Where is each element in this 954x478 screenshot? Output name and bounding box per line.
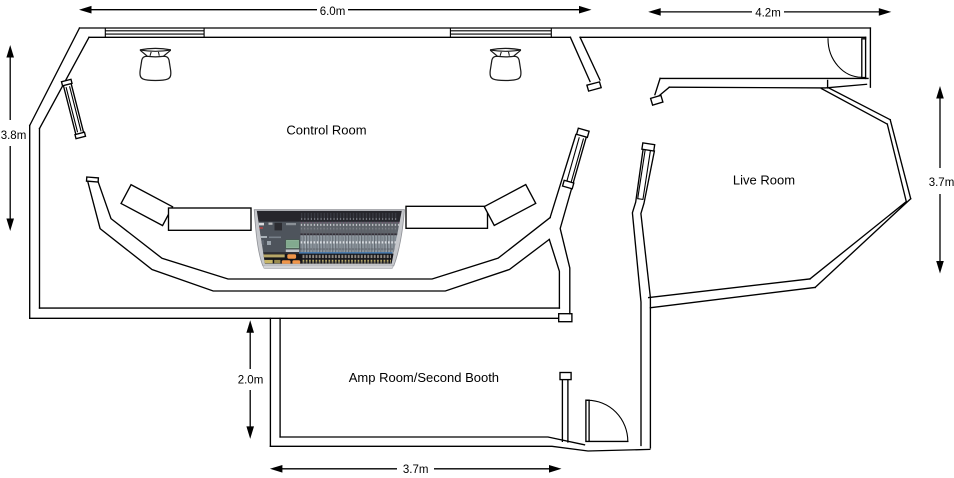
svg-text:2.0m: 2.0m (238, 374, 264, 386)
svg-text:4.2m: 4.2m (755, 7, 781, 19)
svg-text:Control Room: Control Room (286, 122, 366, 137)
svg-text:3.8m: 3.8m (1, 130, 27, 142)
svg-text:Live Room: Live Room (733, 173, 795, 188)
svg-text:Amp Room/Second Booth: Amp Room/Second Booth (349, 370, 499, 385)
svg-text:6.0m: 6.0m (320, 6, 346, 18)
svg-text:3.7m: 3.7m (929, 177, 954, 189)
svg-text:3.7m: 3.7m (403, 464, 429, 476)
